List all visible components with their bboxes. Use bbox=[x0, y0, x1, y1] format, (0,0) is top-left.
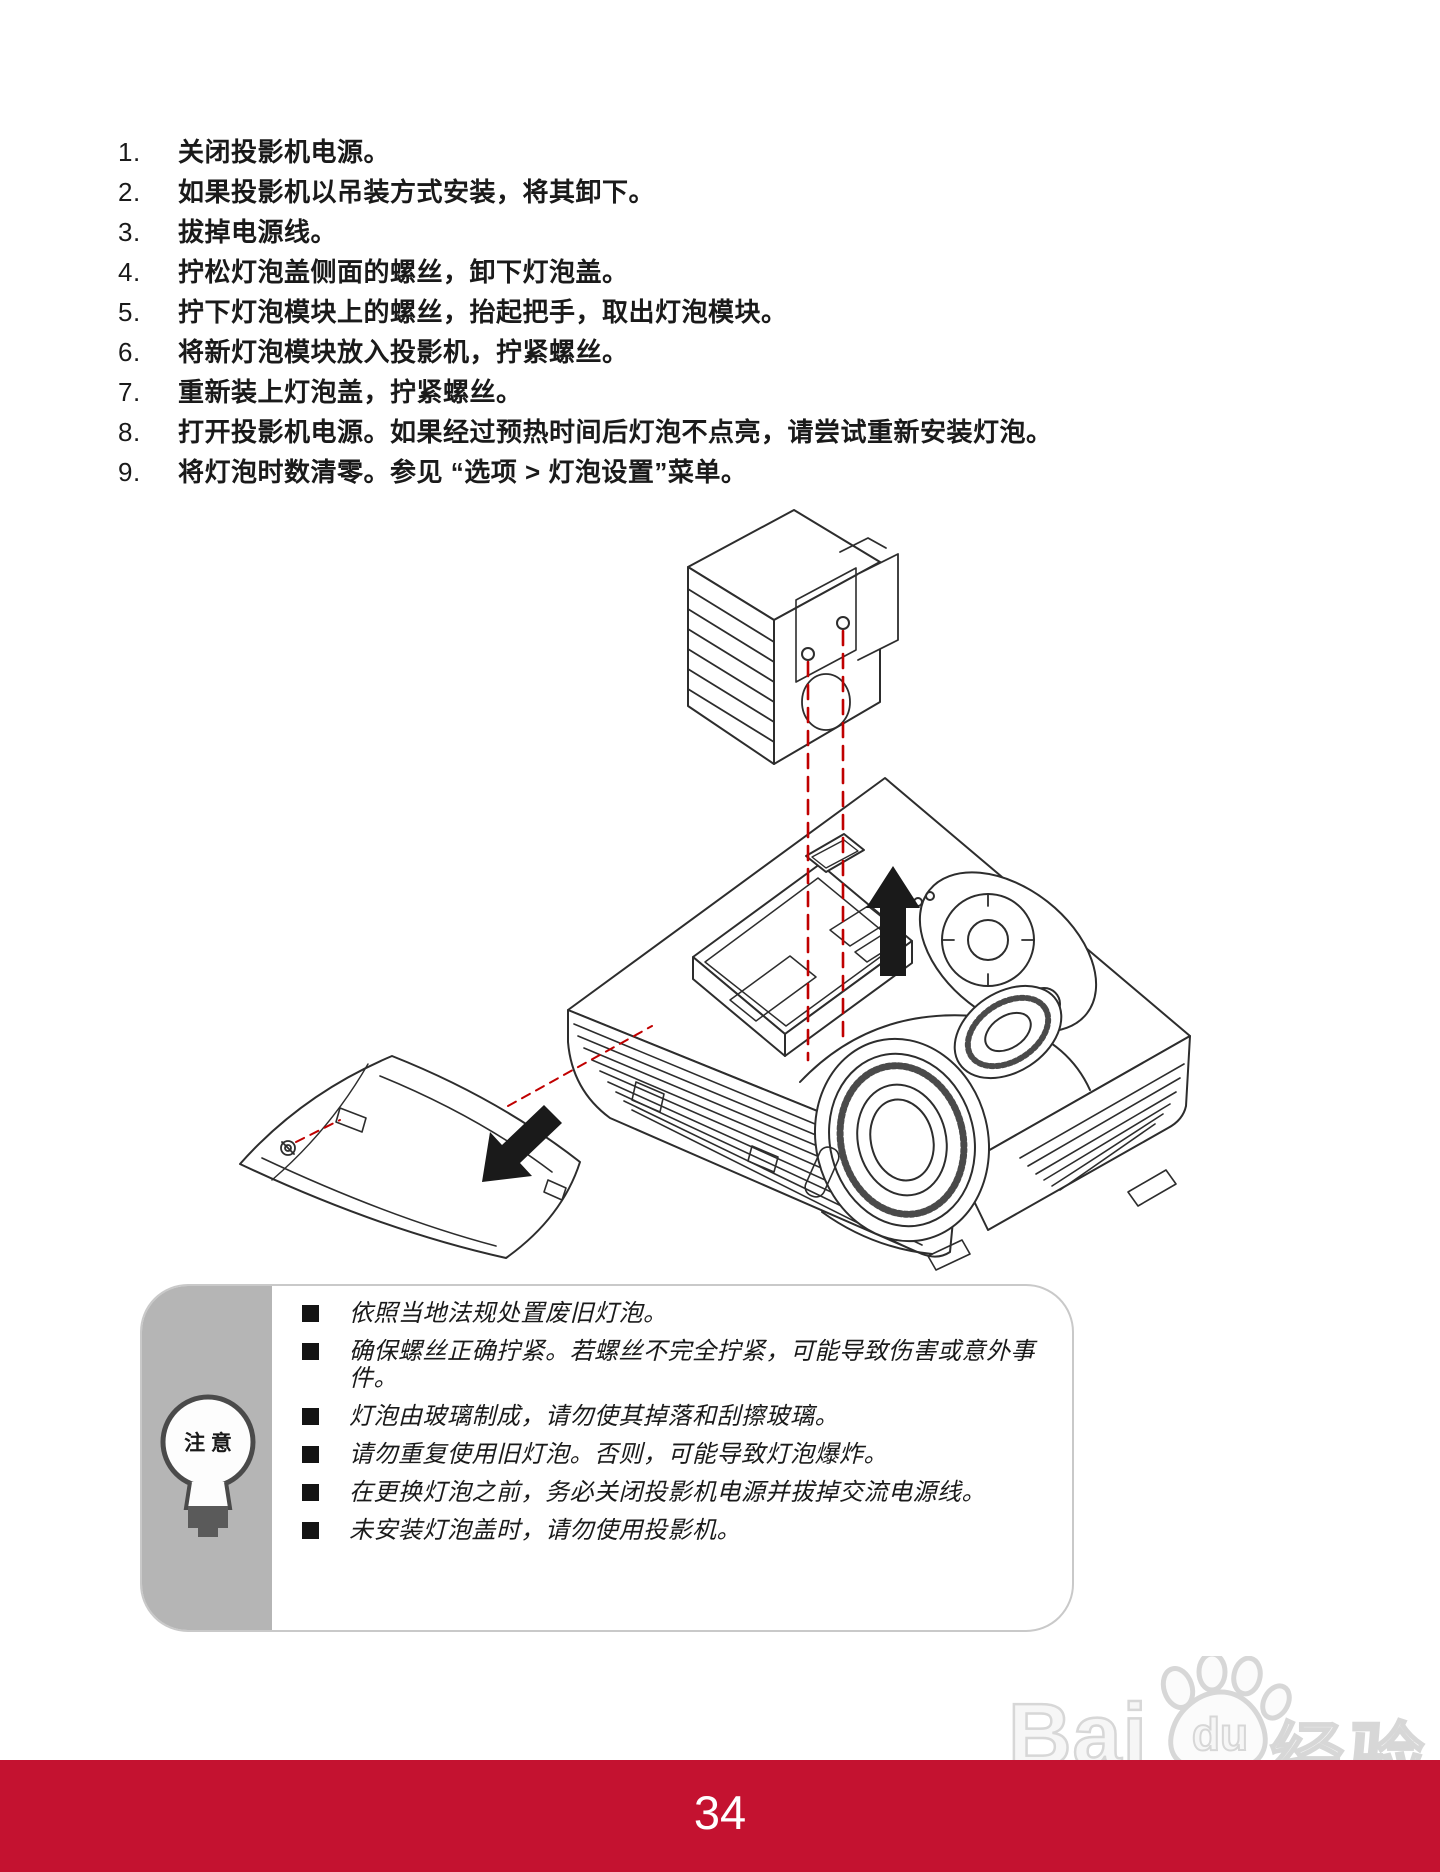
vent-grille-right bbox=[1020, 1064, 1184, 1190]
note-bullet-text: 请勿重复使用旧灯泡。否则，可能导致灯泡爆炸。 bbox=[349, 1441, 888, 1468]
front-details bbox=[632, 1082, 1176, 1270]
list-item: 9. 将灯泡时数清零。参见 “选项 > 灯泡设置”菜单。 bbox=[118, 452, 1318, 492]
item-number: 5. bbox=[118, 292, 178, 332]
item-number: 8. bbox=[118, 412, 178, 452]
caution-bulb-icon: 注 意 bbox=[150, 1390, 266, 1540]
note-label: 注 意 bbox=[184, 1431, 232, 1455]
square-bullet-icon bbox=[302, 1522, 319, 1539]
item-number: 1. bbox=[118, 132, 178, 172]
list-item: 8. 打开投影机电源。如果经过预热时间后灯泡不点亮，请尝试重新安装灯泡。 bbox=[118, 412, 1318, 452]
note-bullet: 依照当地法规处置废旧灯泡。 bbox=[302, 1300, 1052, 1327]
note-bullet-text: 未安装灯泡盖时，请勿使用投影机。 bbox=[349, 1517, 741, 1544]
note-sidebar: 注 意 bbox=[142, 1286, 272, 1630]
square-bullet-icon bbox=[302, 1446, 319, 1463]
page-number: 34 bbox=[0, 1760, 1440, 1866]
note-box: 注 意 依照当地法规处置废旧灯泡。 确保螺丝正确拧紧。若螺丝不完全拧紧，可能导致… bbox=[140, 1284, 1074, 1632]
item-text: 拧松灯泡盖侧面的螺丝，卸下灯泡盖。 bbox=[178, 252, 629, 292]
item-text-suffix: ”菜单。 bbox=[654, 457, 747, 487]
lens bbox=[794, 967, 1090, 1260]
menu-path-bold: 选项 > 灯泡设置 bbox=[464, 457, 654, 487]
cover-screw bbox=[281, 1141, 295, 1155]
item-text: 拔掉电源线。 bbox=[178, 212, 337, 252]
footer-bar: 34 bbox=[0, 1760, 1440, 1872]
note-bullet-text: 灯泡由玻璃制成，请勿使其掉落和刮擦玻璃。 bbox=[349, 1403, 839, 1430]
square-bullet-icon bbox=[302, 1343, 319, 1360]
heatsink-fins bbox=[688, 589, 774, 742]
projector-body bbox=[568, 778, 1190, 1270]
item-text: 拧下灯泡模块上的螺丝，抬起把手，取出灯泡模块。 bbox=[178, 292, 788, 332]
list-item: 1. 关闭投影机电源。 bbox=[118, 132, 1318, 172]
note-bullet-text: 确保螺丝正确拧紧。若螺丝不完全拧紧，可能导致伤害或意外事件。 bbox=[349, 1338, 1052, 1392]
item-text: 将灯泡时数清零。参见 “选项 > 灯泡设置”菜单。 bbox=[178, 452, 747, 492]
item-number: 9. bbox=[118, 452, 178, 492]
note-bullet: 确保螺丝正确拧紧。若螺丝不完全拧紧，可能导致伤害或意外事件。 bbox=[302, 1338, 1052, 1392]
vent-grille-left bbox=[574, 1024, 950, 1250]
lamp-module bbox=[688, 510, 898, 764]
item-number: 4. bbox=[118, 252, 178, 292]
list-item: 2. 如果投影机以吊装方式安装，将其卸下。 bbox=[118, 172, 1318, 212]
item-text: 重新装上灯泡盖，拧紧螺丝。 bbox=[178, 372, 523, 412]
watermark-paw-text: du bbox=[1192, 1708, 1248, 1760]
square-bullet-icon bbox=[302, 1484, 319, 1501]
module-screw bbox=[802, 648, 814, 660]
note-bullet: 未安装灯泡盖时，请勿使用投影机。 bbox=[302, 1517, 1052, 1544]
item-text: 如果投影机以吊装方式安装，将其卸下。 bbox=[178, 172, 655, 212]
instruction-list: 1. 关闭投影机电源。 2. 如果投影机以吊装方式安装，将其卸下。 3. 拔掉电… bbox=[118, 132, 1318, 492]
item-number: 3. bbox=[118, 212, 178, 252]
item-number: 6. bbox=[118, 332, 178, 372]
alignment-guides bbox=[296, 631, 843, 1142]
lamp-bay bbox=[693, 864, 912, 1056]
square-bullet-icon bbox=[302, 1408, 319, 1425]
item-number: 2. bbox=[118, 172, 178, 212]
note-bullet-list: 依照当地法规处置废旧灯泡。 确保螺丝正确拧紧。若螺丝不完全拧紧，可能导致伤害或意… bbox=[302, 1300, 1052, 1555]
lamp-cover bbox=[240, 1056, 580, 1258]
arrow-down-left bbox=[482, 1105, 562, 1182]
item-number: 7. bbox=[118, 372, 178, 412]
item-text: 将新灯泡模块放入投影机，拧紧螺丝。 bbox=[178, 332, 629, 372]
note-bullet-text: 在更换灯泡之前，务必关闭投影机电源并拔掉交流电源线。 bbox=[349, 1479, 986, 1506]
top-vent bbox=[806, 834, 864, 872]
list-item: 6. 将新灯泡模块放入投影机，拧紧螺丝。 bbox=[118, 332, 1318, 372]
list-item: 3. 拔掉电源线。 bbox=[118, 212, 1318, 252]
note-bullet-text: 依照当地法规处置废旧灯泡。 bbox=[349, 1300, 668, 1327]
module-screw bbox=[837, 617, 849, 629]
note-bullet: 在更换灯泡之前，务必关闭投影机电源并拔掉交流电源线。 bbox=[302, 1479, 1052, 1506]
arrow-up bbox=[866, 866, 920, 976]
note-bullet: 灯泡由玻璃制成，请勿使其掉落和刮擦玻璃。 bbox=[302, 1403, 1052, 1430]
list-item: 7. 重新装上灯泡盖，拧紧螺丝。 bbox=[118, 372, 1318, 412]
note-bullet: 请勿重复使用旧灯泡。否则，可能导致灯泡爆炸。 bbox=[302, 1441, 1052, 1468]
item-text: 打开投影机电源。如果经过预热时间后灯泡不点亮，请尝试重新安装灯泡。 bbox=[178, 412, 1053, 452]
list-item: 5. 拧下灯泡模块上的螺丝，抬起把手，取出灯泡模块。 bbox=[118, 292, 1318, 332]
control-pad bbox=[890, 840, 1126, 1064]
item-text-prefix: 将灯泡时数清零。参见 “ bbox=[178, 457, 464, 487]
list-item: 4. 拧松灯泡盖侧面的螺丝，卸下灯泡盖。 bbox=[118, 252, 1318, 292]
square-bullet-icon bbox=[302, 1305, 319, 1322]
item-text: 关闭投影机电源。 bbox=[178, 132, 390, 172]
